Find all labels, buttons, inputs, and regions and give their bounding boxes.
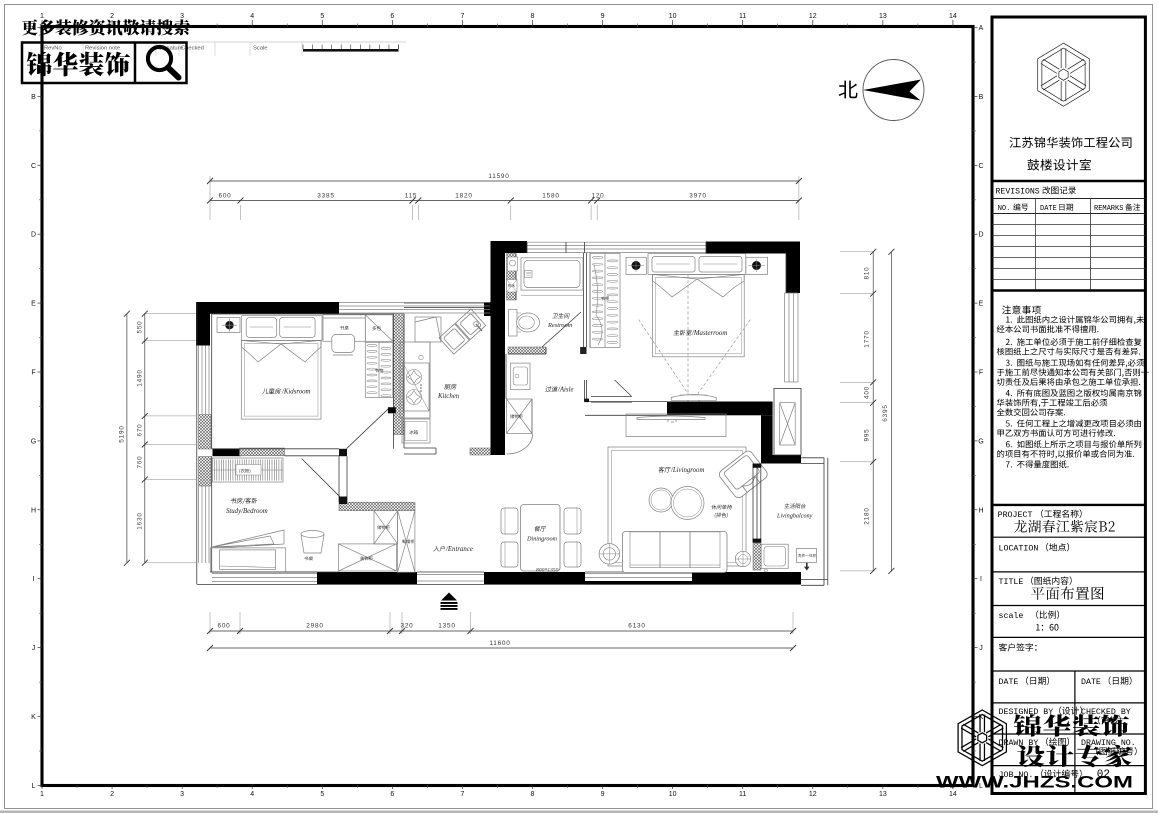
svg-text:I: I	[980, 576, 982, 583]
svg-text:D: D	[31, 232, 36, 239]
svg-text:A: A	[979, 25, 984, 32]
svg-text:REVISIONS: REVISIONS	[996, 188, 1040, 197]
svg-text:K: K	[31, 714, 36, 721]
svg-text:1: 1	[40, 13, 44, 20]
svg-text:6: 6	[390, 13, 394, 20]
svg-text:DESIGNED BY: DESIGNED BY	[999, 708, 1054, 717]
svg-text:995: 995	[864, 428, 871, 441]
svg-text:760: 760	[137, 455, 144, 468]
svg-text:1630: 1630	[137, 512, 144, 529]
svg-text:DATE: DATE	[1081, 678, 1101, 687]
svg-text:14: 14	[949, 791, 957, 798]
svg-text:320: 320	[400, 623, 413, 630]
svg-text:7: 7	[460, 13, 464, 20]
svg-text:/Livingroom: /Livingroom	[670, 467, 704, 474]
svg-text:Revision note: Revision note	[85, 46, 120, 52]
svg-text:J: J	[979, 645, 983, 652]
svg-text:2180: 2180	[864, 507, 871, 524]
svg-text:13: 13	[879, 13, 887, 20]
svg-text:DATE: DATE	[999, 678, 1019, 687]
svg-text:6130: 6130	[628, 623, 645, 630]
svg-text:C: C	[978, 163, 983, 170]
svg-text:2980: 2980	[306, 623, 323, 630]
svg-text:F: F	[31, 370, 35, 377]
svg-text:3970: 3970	[689, 193, 706, 200]
svg-text:600: 600	[217, 623, 230, 630]
svg-text:/Aisle: /Aisle	[557, 387, 573, 394]
svg-text:3: 3	[180, 791, 184, 798]
svg-text:810: 810	[864, 266, 871, 279]
svg-text:B: B	[31, 94, 36, 101]
svg-text:10: 10	[669, 791, 677, 798]
svg-text:I: I	[33, 576, 35, 583]
svg-text:14: 14	[949, 13, 957, 20]
svg-text:H: H	[978, 507, 983, 514]
svg-text:PROJECT: PROJECT	[998, 511, 1033, 520]
svg-text:12: 12	[809, 13, 817, 20]
svg-text:11: 11	[739, 13, 746, 20]
svg-text:400: 400	[864, 386, 871, 399]
svg-text:B: B	[979, 94, 984, 101]
svg-text:REMARKS: REMARKS	[1094, 205, 1123, 213]
svg-text:C: C	[31, 163, 36, 170]
svg-text:1770: 1770	[864, 330, 871, 347]
svg-text:11590: 11590	[488, 173, 509, 180]
svg-text:H: H	[31, 507, 36, 514]
svg-text:670: 670	[137, 423, 144, 436]
svg-text:G: G	[31, 438, 36, 445]
svg-text:6395: 6395	[882, 404, 889, 421]
svg-text:8: 8	[531, 13, 535, 20]
svg-text:11600: 11600	[489, 640, 510, 647]
svg-text:DATE: DATE	[1040, 205, 1057, 213]
svg-text:scale: scale	[999, 611, 1024, 621]
svg-text:4: 4	[250, 791, 254, 798]
svg-text:Diningroom: Diningroom	[526, 536, 558, 543]
svg-text:2: 2	[110, 13, 114, 20]
svg-text:WWW.JHZS.COM: WWW.JHZS.COM	[936, 774, 1133, 792]
svg-text:1: 1	[40, 791, 44, 798]
svg-text:/Masterroom: /Masterroom	[691, 330, 727, 337]
svg-text:L: L	[32, 783, 36, 790]
svg-text:7: 7	[460, 791, 464, 798]
svg-text:3: 3	[180, 13, 184, 20]
svg-text:Livingbalcony: Livingbalcony	[776, 513, 813, 520]
svg-text:J: J	[32, 645, 36, 652]
svg-text:D: D	[978, 232, 983, 239]
svg-text:TITLE: TITLE	[999, 578, 1024, 587]
svg-text:12: 12	[809, 791, 817, 798]
svg-text:6: 6	[390, 791, 394, 798]
svg-text:G: G	[978, 438, 983, 445]
svg-text:1350: 1350	[438, 623, 455, 630]
svg-text:/Entrance: /Entrance	[445, 546, 473, 553]
svg-text:1580: 1580	[542, 193, 559, 200]
svg-text:5: 5	[320, 791, 324, 798]
svg-text:Checked: Checked	[181, 46, 204, 52]
svg-text:550: 550	[137, 320, 144, 333]
svg-text:Study/Bedroom: Study/Bedroom	[226, 508, 268, 515]
svg-text:Scale: Scale	[253, 46, 268, 52]
svg-text:800*1350: 800*1350	[536, 568, 559, 574]
svg-text:1820: 1820	[455, 193, 472, 200]
svg-text:LOCATION: LOCATION	[999, 545, 1039, 554]
svg-text:E: E	[31, 301, 36, 308]
svg-text:9: 9	[601, 791, 605, 798]
svg-text:F: F	[979, 370, 983, 377]
svg-text:8: 8	[531, 791, 535, 798]
svg-text:E: E	[979, 301, 984, 308]
svg-text:Kitchen: Kitchen	[437, 393, 460, 400]
svg-text:5: 5	[320, 13, 324, 20]
svg-text:NO.: NO.	[998, 205, 1011, 213]
svg-text:3385: 3385	[317, 193, 334, 200]
svg-text:5190: 5190	[119, 425, 126, 442]
svg-text:10: 10	[669, 13, 677, 20]
svg-text:120: 120	[591, 193, 604, 200]
svg-text:4: 4	[250, 13, 254, 20]
svg-text:1490: 1490	[137, 369, 144, 386]
svg-text:RevNo: RevNo	[44, 46, 62, 52]
svg-text:11: 11	[739, 791, 746, 798]
svg-text:115: 115	[405, 193, 418, 200]
svg-text:13: 13	[879, 791, 887, 798]
svg-text:/Kidsroom: /Kidsroom	[281, 389, 311, 396]
svg-text:9: 9	[601, 13, 605, 20]
svg-text:2: 2	[110, 791, 114, 798]
svg-text:600: 600	[218, 193, 231, 200]
